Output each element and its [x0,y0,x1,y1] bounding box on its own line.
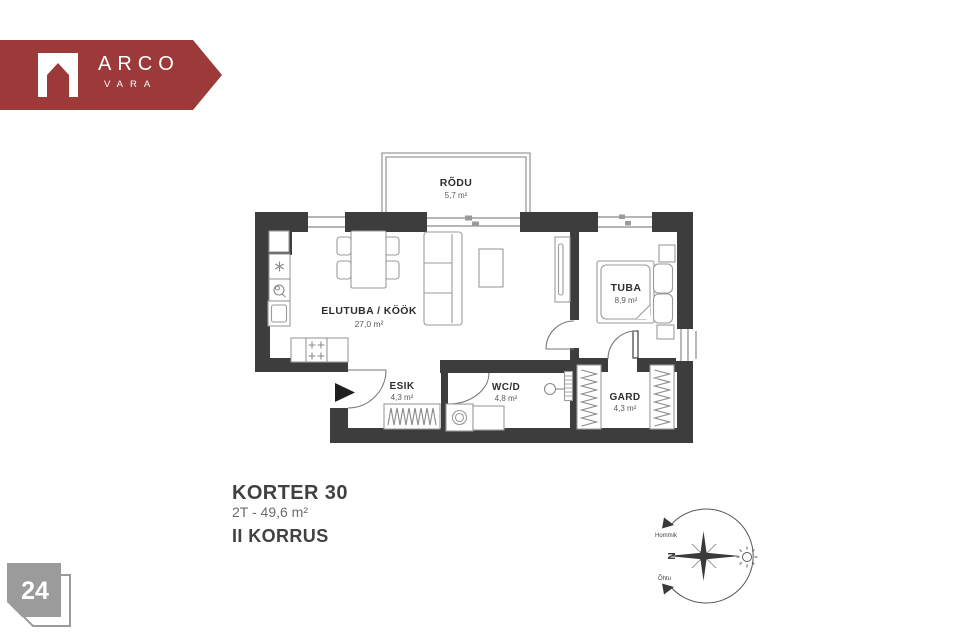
svg-text:4,8 m²: 4,8 m² [495,394,518,403]
svg-text:ESIK: ESIK [390,381,415,392]
page-number-badge: 24 [4,562,76,634]
wardrobe-rail [650,365,674,429]
pillow [654,264,673,293]
fridge [269,254,290,279]
balcony-sliding-door [427,212,520,232]
sun-icon [737,547,758,568]
entrance-door-arc [348,370,386,408]
kitchen-counter [291,338,348,362]
cabinet [555,237,570,302]
north-label: N [665,552,676,559]
room-label-elutuba: ELUTUBA / KÖÖK 27,0 m² [321,304,417,329]
svg-text:27,0 m²: 27,0 m² [355,319,384,329]
evening-label: Õhtu [658,575,671,582]
sink [269,279,290,301]
room-label-esik: ESIK 4,3 m² [390,381,415,402]
bedroom-door-arc [546,321,574,349]
shower-icon [545,372,573,401]
dining-table [351,231,386,288]
apartment-title: KORTER 30 [232,482,348,505]
wardrobe-door-arc [608,331,638,359]
oven [268,301,290,326]
shaft-box [269,231,289,252]
svg-text:WC/D: WC/D [492,382,520,393]
room-label-wcd: WC/D 4,8 m² [492,382,520,403]
nightstand [657,325,674,339]
wardrobe-rail [577,365,601,429]
svg-text:ELUTUBA / KÖÖK: ELUTUBA / KÖÖK [321,304,417,317]
page: ARCO VARA [0,0,960,640]
svg-text:4,3 m²: 4,3 m² [614,404,637,413]
compass: N Hommik Õhtu [655,509,758,603]
side-table [479,249,503,287]
svg-text:RÕDU: RÕDU [440,176,473,189]
svg-text:8,9 m²: 8,9 m² [615,296,638,305]
entrance-arrow-icon [335,383,355,402]
room-label-rodu: RÕDU 5,7 m² [440,176,473,200]
bathroom-counter [473,406,504,430]
window [308,212,345,232]
apartment-subtitle: 2T - 49,6 m² [232,504,308,520]
morning-label: Hommik [655,533,678,539]
window [676,329,700,361]
window [598,212,652,232]
page-number: 24 [21,577,49,605]
sofa [424,232,462,325]
svg-text:5,7 m²: 5,7 m² [445,191,468,200]
floorplan: RÕDU 5,7 m² ELUTUBA / KÖÖK 27,0 m² TUBA … [0,0,960,640]
svg-text:4,3 m²: 4,3 m² [391,393,414,402]
room-label-tuba: TUBA 8,9 m² [611,282,642,305]
radiator [384,404,440,429]
room-label-gard: GARD 4,3 m² [609,392,640,413]
compass-star [668,531,740,581]
washing-machine [446,404,473,431]
floor-label: II KORRUS [232,526,329,547]
svg-text:TUBA: TUBA [611,282,642,294]
wc-door-arc [448,373,489,404]
nightstand [659,245,675,262]
svg-text:GARD: GARD [609,392,640,403]
pillow [654,294,673,323]
